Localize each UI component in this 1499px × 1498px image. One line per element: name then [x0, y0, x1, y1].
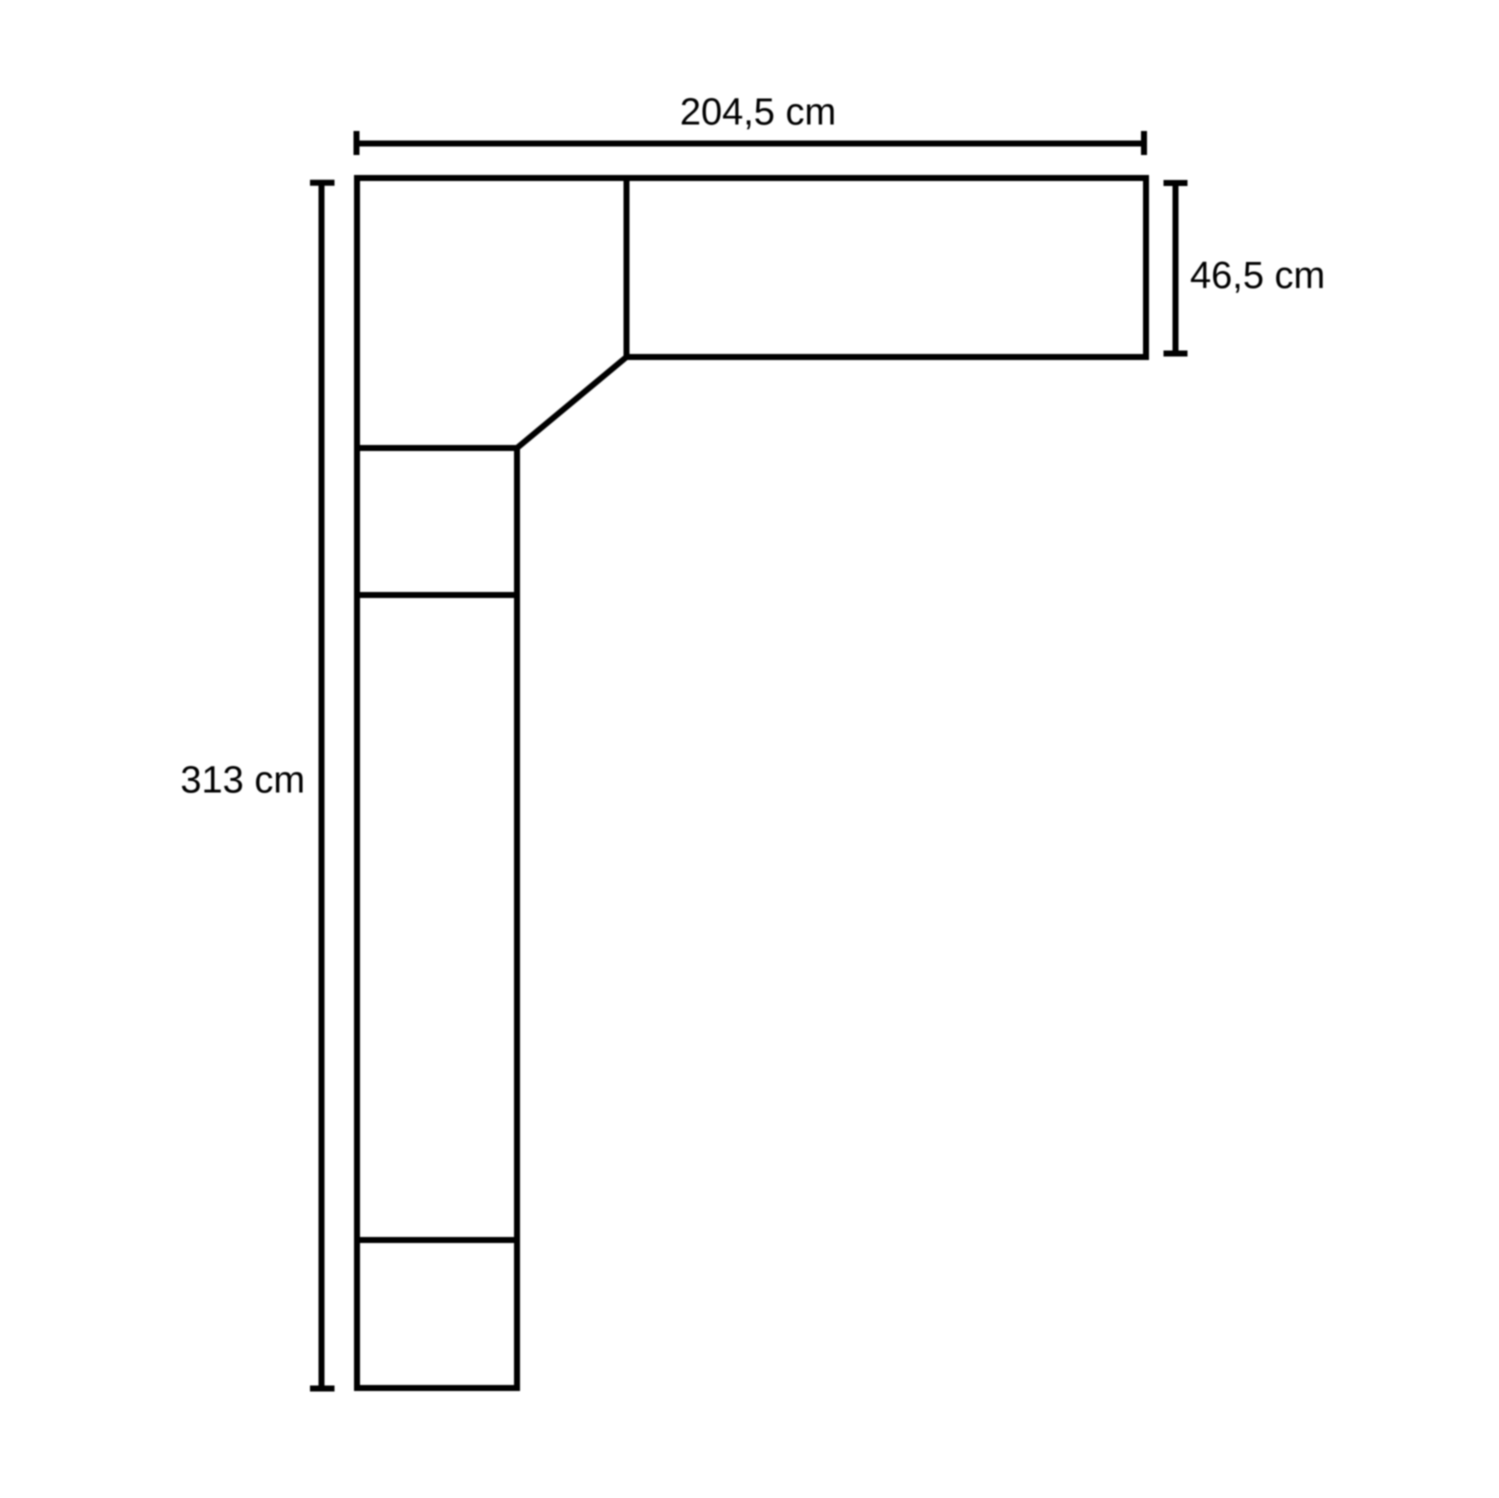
svg-text:46,5 cm: 46,5 cm — [1190, 255, 1325, 297]
svg-text:204,5 cm: 204,5 cm — [680, 92, 836, 134]
svg-text:313 cm: 313 cm — [180, 760, 305, 802]
